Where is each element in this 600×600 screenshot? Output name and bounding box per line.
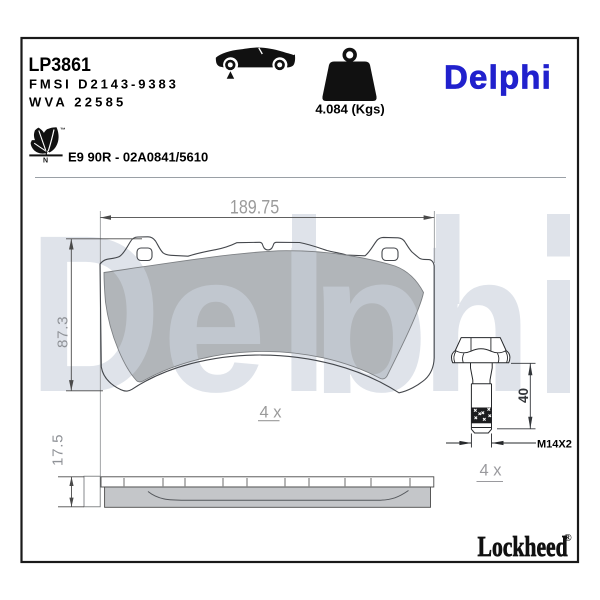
svg-text:®: ® xyxy=(564,532,572,544)
svg-text:4.084 (Kgs): 4.084 (Kgs) xyxy=(315,102,384,117)
svg-text:N: N xyxy=(43,158,48,165)
svg-text:4 x: 4 x xyxy=(480,462,503,480)
svg-text:Delphi: Delphi xyxy=(444,58,552,95)
svg-text:E9 90R - 02A0841/5610: E9 90R - 02A0841/5610 xyxy=(68,150,208,165)
svg-text:17.5: 17.5 xyxy=(50,434,67,466)
svg-text:LP3861: LP3861 xyxy=(29,53,91,75)
svg-text:87.3: 87.3 xyxy=(55,316,72,348)
svg-text:FMSI D2143-9383: FMSI D2143-9383 xyxy=(29,77,179,92)
svg-text:WVA 22585: WVA 22585 xyxy=(29,95,126,110)
svg-text:4 x: 4 x xyxy=(260,404,283,422)
svg-text:189.75: 189.75 xyxy=(230,196,279,218)
svg-text:™: ™ xyxy=(60,128,66,134)
svg-text:Lockheed: Lockheed xyxy=(478,531,568,563)
svg-text:M14X2: M14X2 xyxy=(537,439,572,451)
svg-text:40: 40 xyxy=(516,388,531,403)
